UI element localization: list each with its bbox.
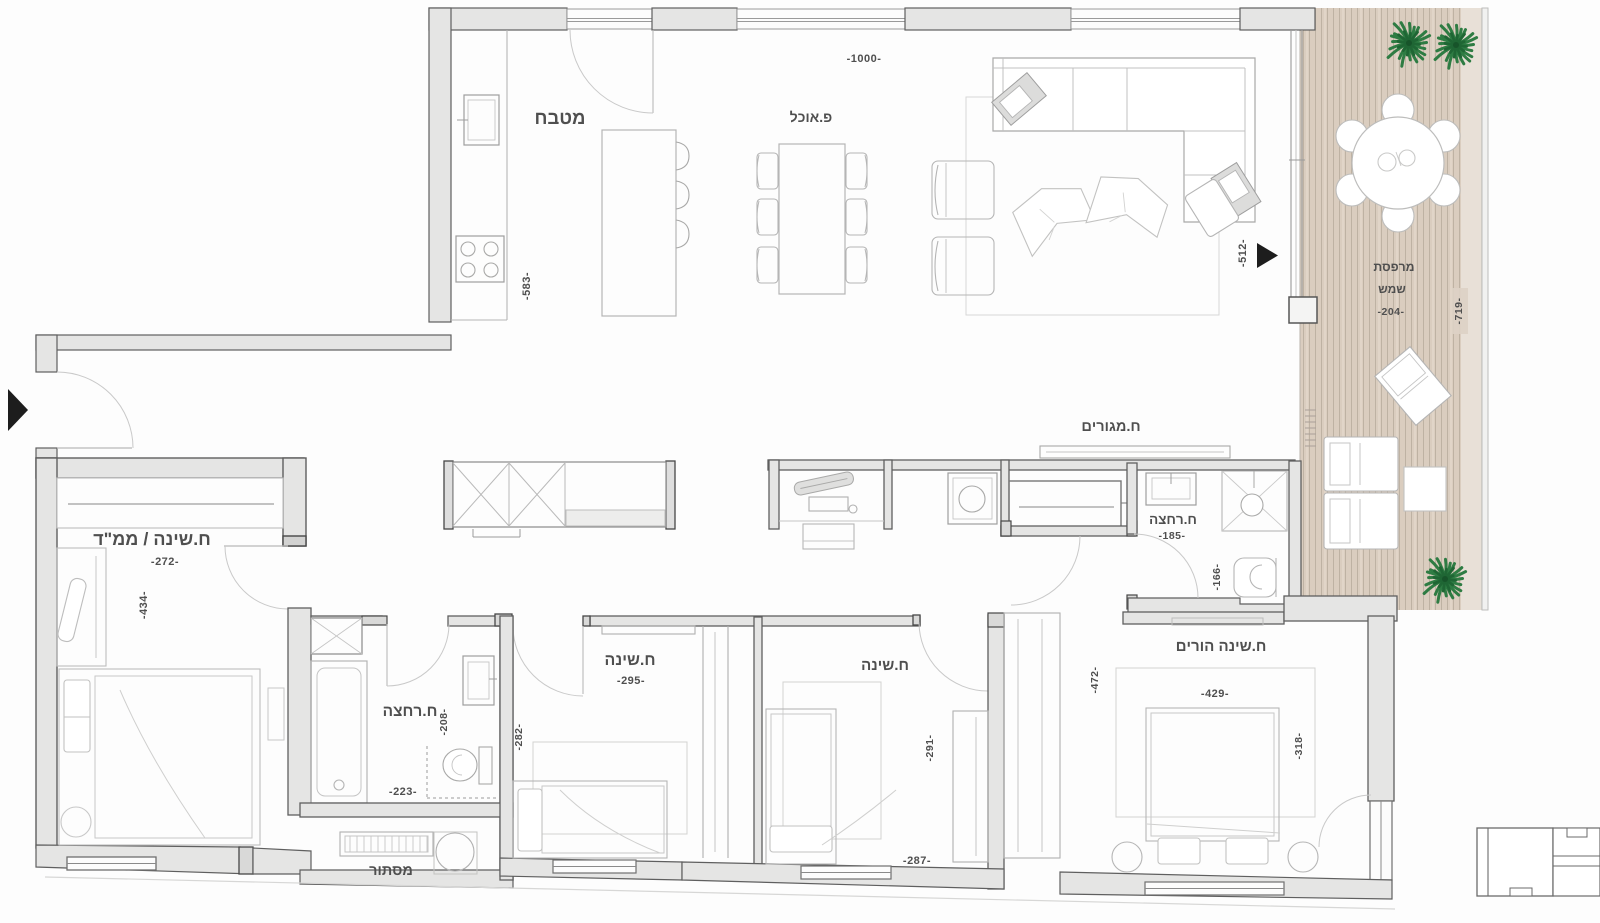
svg-text:-472-: -472- bbox=[1089, 666, 1101, 693]
svg-text:-208-: -208- bbox=[438, 708, 450, 735]
svg-text:-1000-: -1000- bbox=[847, 53, 882, 65]
svg-text:-223-: -223- bbox=[389, 786, 417, 798]
svg-text:-512-: -512- bbox=[1237, 239, 1249, 267]
svg-text:-272-: -272- bbox=[151, 556, 179, 568]
svg-text:-434-: -434- bbox=[138, 591, 150, 619]
svg-text:-287-: -287- bbox=[903, 855, 931, 867]
svg-text:-429-: -429- bbox=[1201, 688, 1229, 700]
svg-text:-291-: -291- bbox=[924, 734, 936, 761]
svg-text:-204-: -204- bbox=[1377, 306, 1404, 318]
svg-text:-318-: -318- bbox=[1293, 732, 1305, 759]
svg-text:-166-: -166- bbox=[1211, 563, 1223, 590]
svg-text:-185-: -185- bbox=[1158, 530, 1185, 542]
svg-text:-583-: -583- bbox=[521, 272, 533, 300]
svg-text:-719-: -719- bbox=[1453, 297, 1465, 324]
svg-text:-282-: -282- bbox=[513, 723, 525, 750]
svg-text:-295-: -295- bbox=[617, 675, 645, 687]
